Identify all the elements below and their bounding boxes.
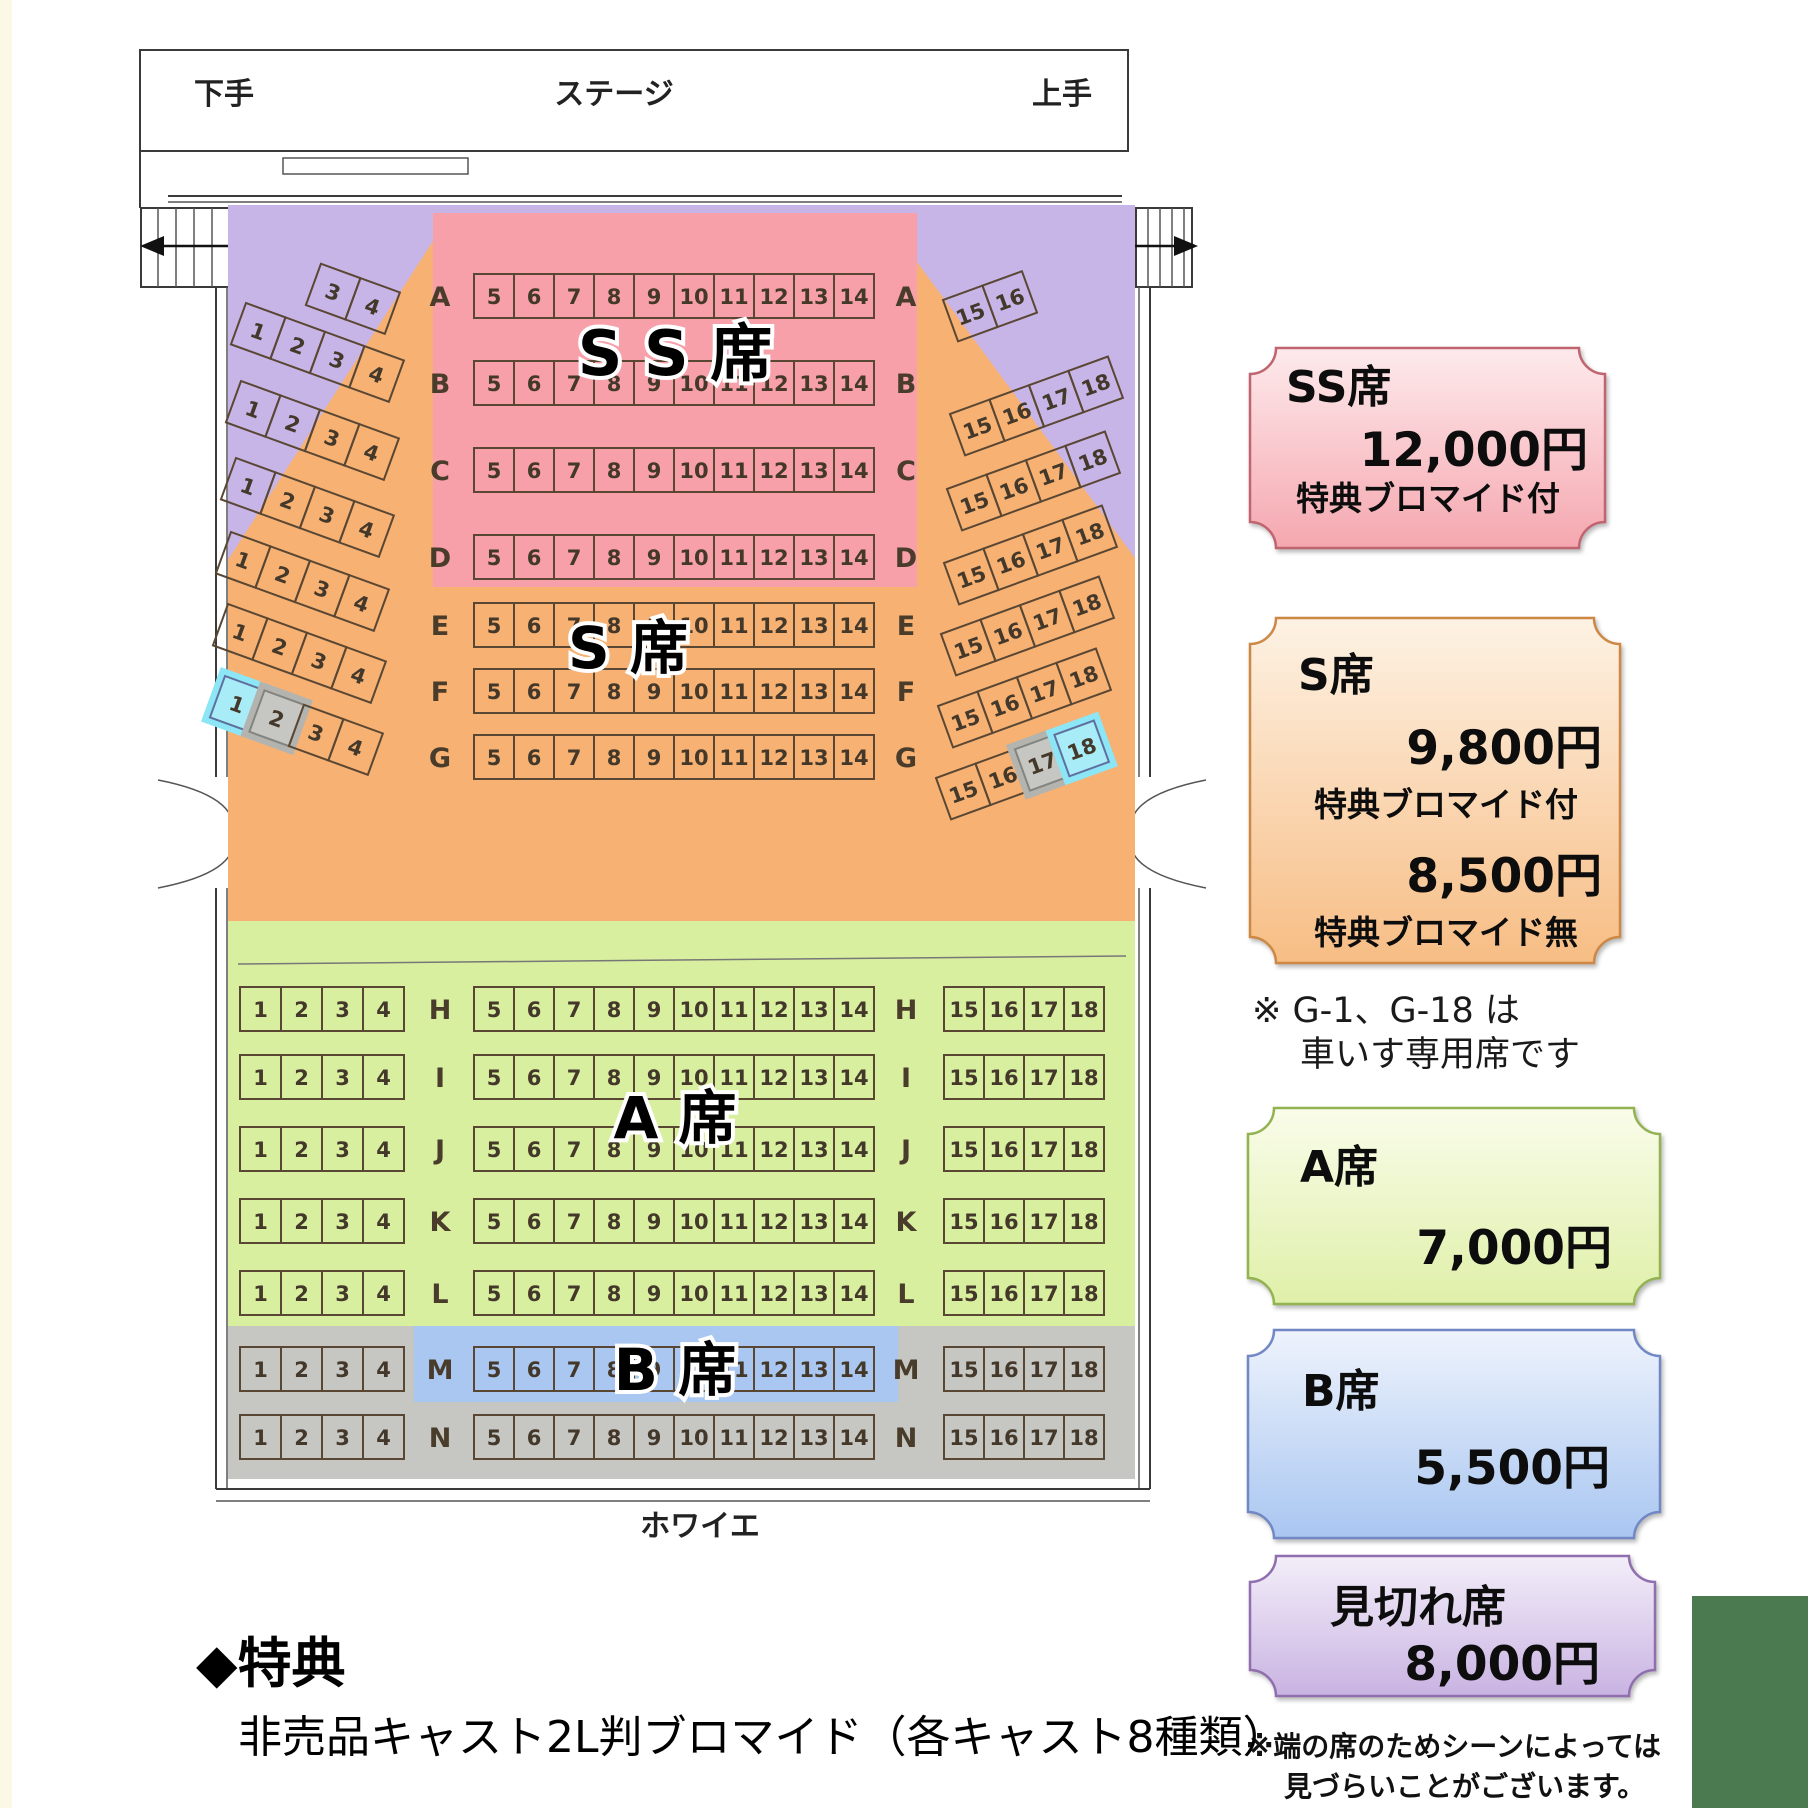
seat-number-M-16: 16 [989,1358,1018,1382]
row-label-L-right: L [897,1279,914,1310]
seat-number-E-6: 6 [527,614,542,638]
stage-left-label: 下手 [194,77,254,112]
seat-number-J-1: 1 [253,1138,268,1162]
seat-number-B-14: 14 [839,372,868,396]
ticket-s-note: 特典ブロマイド付 [1314,785,1578,824]
seat-number-N-12: 12 [759,1426,788,1450]
seat-number-D-9: 9 [647,546,662,570]
seat-number-M-12: 12 [759,1358,788,1382]
seat-number-K-6: 6 [527,1210,542,1234]
seat-number-H-6: 6 [527,998,542,1022]
seat-number-I-3: 3 [335,1066,350,1090]
seat-number-H-2: 2 [294,998,309,1022]
seat-number-F-10: 10 [679,680,708,704]
seat-number-G-9: 9 [647,746,662,770]
row-label-D-right: D [895,543,917,574]
row-label-A-right: A [896,282,917,313]
seat-number-E-13: 13 [799,614,828,638]
seat-number-D-11: 11 [719,546,748,570]
seat-number-H-11: 11 [719,998,748,1022]
ticket-s-note2: 特典ブロマイド無 [1314,913,1578,952]
seat-number-C-9: 9 [647,459,662,483]
seat-number-K-9: 9 [647,1210,662,1234]
seat-number-A-7: 7 [567,285,582,309]
seat-number-L-2: 2 [294,1282,309,1306]
row-label-K-left: K [430,1207,452,1238]
seat-number-J-16: 16 [989,1138,1018,1162]
seat-number-D-12: 12 [759,546,788,570]
seat-number-N-16: 16 [989,1426,1018,1450]
ticket-ss-price: 12,000円 [1360,423,1588,478]
seat-number-J-5: 5 [487,1138,502,1162]
seat-number-I-7: 7 [567,1066,582,1090]
seat-number-C-12: 12 [759,459,788,483]
seat-number-N-8: 8 [607,1426,622,1450]
seat-number-E-11: 11 [719,614,748,638]
seat-number-K-2: 2 [294,1210,309,1234]
seating-chart-page: AA567891011121314341516BB567891011121314… [0,0,1808,1808]
row-label-N-left: N [429,1423,452,1454]
seat-number-I-14: 14 [839,1066,868,1090]
benefit-body: 非売品キャスト2L判ブロマイド（各キャスト8種類） [238,1712,1287,1763]
foyer-label: ホワイエ [640,1509,760,1544]
seat-number-N-1: 1 [253,1426,268,1450]
stage-monitor [283,158,468,174]
seat-number-H-10: 10 [679,998,708,1022]
seat-number-F-6: 6 [527,680,542,704]
edge-note-line2: 見づらいことがございます。 [1284,1770,1645,1803]
seat-number-J-3: 3 [335,1138,350,1162]
seat-number-C-7: 7 [567,459,582,483]
seat-number-J-7: 7 [567,1138,582,1162]
seat-number-H-4: 4 [376,998,391,1022]
seat-number-K-12: 12 [759,1210,788,1234]
row-label-I-left: I [435,1063,445,1094]
seat-number-I-1: 1 [253,1066,268,1090]
seat-number-L-13: 13 [799,1282,828,1306]
seat-number-I-16: 16 [989,1066,1018,1090]
row-label-N-right: N [895,1423,918,1454]
row-label-J-right: J [899,1135,911,1166]
seat-number-I-15: 15 [949,1066,978,1090]
ticket-b-price: 5,500円 [1414,1441,1610,1496]
seat-number-F-5: 5 [487,680,502,704]
seat-number-B-5: 5 [487,372,502,396]
seat-number-G-5: 5 [487,746,502,770]
stage-label: ステージ [554,77,673,112]
seat-number-D-5: 5 [487,546,502,570]
seat-number-L-1: 1 [253,1282,268,1306]
seat-number-F-12: 12 [759,680,788,704]
seat-number-G-12: 12 [759,746,788,770]
seat-number-H-5: 5 [487,998,502,1022]
seat-number-L-16: 16 [989,1282,1018,1306]
seat-number-M-4: 4 [376,1358,391,1382]
seat-number-L-10: 10 [679,1282,708,1306]
seat-number-G-13: 13 [799,746,828,770]
seat-number-H-1: 1 [253,998,268,1022]
seat-number-H-12: 12 [759,998,788,1022]
seat-number-F-7: 7 [567,680,582,704]
benefit-heading: ◆特典 [196,1632,346,1695]
seat-number-A-5: 5 [487,285,502,309]
seat-number-D-6: 6 [527,546,542,570]
seat-number-A-12: 12 [759,285,788,309]
corner-green-block [1692,1596,1808,1808]
seat-number-K-7: 7 [567,1210,582,1234]
seat-number-I-12: 12 [759,1066,788,1090]
zone-label-a: A 席 [613,1084,736,1152]
wheelchair-note-line1: ※ G-1、G-18 は [1252,991,1520,1031]
seat-number-D-7: 7 [567,546,582,570]
seat-number-H-16: 16 [989,998,1018,1022]
page-edge-strip [0,0,12,1808]
seat-number-N-15: 15 [949,1426,978,1450]
zone-label-ss: S S 席 [578,317,772,390]
seat-number-C-6: 6 [527,459,542,483]
row-label-M-left: M [427,1355,454,1386]
ticket-s-title: S席 [1298,650,1374,701]
seat-number-H-7: 7 [567,998,582,1022]
ticket-a-title: A席 [1300,1142,1378,1193]
row-label-K-right: K [896,1207,918,1238]
row-label-B-right: B [896,369,917,400]
seat-number-H-13: 13 [799,998,828,1022]
seat-number-M-17: 17 [1029,1358,1058,1382]
seat-number-A-6: 6 [527,285,542,309]
seat-number-C-14: 14 [839,459,868,483]
row-label-M-right: M [893,1355,920,1386]
seat-number-G-8: 8 [607,746,622,770]
seat-number-K-5: 5 [487,1210,502,1234]
stage-right-label: 上手 [1032,77,1092,112]
seat-number-L-8: 8 [607,1282,622,1306]
seat-number-C-13: 13 [799,459,828,483]
seat-number-H-9: 9 [647,998,662,1022]
seat-number-K-18: 18 [1069,1210,1098,1234]
row-label-G-right: G [895,743,917,774]
ticket-ss-title: SS席 [1286,362,1391,413]
seat-number-N-13: 13 [799,1426,828,1450]
seat-number-L-5: 5 [487,1282,502,1306]
seat-number-M-2: 2 [294,1358,309,1382]
row-label-E-left: E [431,611,449,642]
row-label-C-right: C [896,456,916,487]
seat-number-F-14: 14 [839,680,868,704]
row-label-I-right: I [901,1063,911,1094]
seat-number-F-9: 9 [647,680,662,704]
seat-number-D-14: 14 [839,546,868,570]
seat-number-N-10: 10 [679,1426,708,1450]
seat-number-L-4: 4 [376,1282,391,1306]
seat-number-L-9: 9 [647,1282,662,1306]
seat-number-M-5: 5 [487,1358,502,1382]
row-label-C-left: C [430,456,450,487]
seat-number-H-17: 17 [1029,998,1058,1022]
seat-number-L-15: 15 [949,1282,978,1306]
seat-number-M-15: 15 [949,1358,978,1382]
seat-number-L-12: 12 [759,1282,788,1306]
seat-number-L-6: 6 [527,1282,542,1306]
seat-number-B-6: 6 [527,372,542,396]
seat-number-J-12: 12 [759,1138,788,1162]
row-label-A-left: A [430,282,451,313]
ticket-b [1248,1330,1660,1538]
seating-chart-svg: AA567891011121314341516BB567891011121314… [0,0,1808,1808]
row-label-E-right: E [897,611,915,642]
seat-number-N-11: 11 [719,1426,748,1450]
ticket-mikire-price: 8,000円 [1404,1637,1600,1692]
seat-number-N-18: 18 [1069,1426,1098,1450]
seat-number-N-14: 14 [839,1426,868,1450]
seat-number-K-13: 13 [799,1210,828,1234]
seat-number-J-6: 6 [527,1138,542,1162]
seat-number-C-10: 10 [679,459,708,483]
seat-number-J-14: 14 [839,1138,868,1162]
seat-number-I-4: 4 [376,1066,391,1090]
seat-number-N-17: 17 [1029,1426,1058,1450]
seat-number-K-3: 3 [335,1210,350,1234]
row-label-H-left: H [429,995,452,1026]
row-label-B-left: B [430,369,451,400]
seat-number-K-1: 1 [253,1210,268,1234]
seat-number-K-11: 11 [719,1210,748,1234]
ticket-a-price: 7,000円 [1416,1221,1612,1276]
seat-number-L-11: 11 [719,1282,748,1306]
seat-number-J-15: 15 [949,1138,978,1162]
seat-number-N-6: 6 [527,1426,542,1450]
door-left [158,780,234,888]
ticket-s-price2: 8,500円 [1406,849,1602,904]
seat-number-E-14: 14 [839,614,868,638]
seat-number-A-8: 8 [607,285,622,309]
ticket-ss-note: 特典ブロマイド付 [1296,479,1560,518]
seat-number-E-12: 12 [759,614,788,638]
zone-label-s: S 席 [568,614,688,682]
seat-number-N-9: 9 [647,1426,662,1450]
seat-number-N-7: 7 [567,1426,582,1450]
seat-number-H-18: 18 [1069,998,1098,1022]
seat-number-M-13: 13 [799,1358,828,1382]
seat-number-M-6: 6 [527,1358,542,1382]
ticket-s-price: 9,800円 [1406,721,1602,776]
seat-number-J-4: 4 [376,1138,391,1162]
seat-number-D-13: 13 [799,546,828,570]
row-label-F-left: F [431,677,449,708]
seat-number-F-11: 11 [719,680,748,704]
seat-number-A-9: 9 [647,285,662,309]
seat-number-F-8: 8 [607,680,622,704]
seat-number-G-14: 14 [839,746,868,770]
zone-label-b: B 席 [614,1336,736,1404]
seat-number-K-4: 4 [376,1210,391,1234]
seat-number-L-18: 18 [1069,1282,1098,1306]
seat-number-N-5: 5 [487,1426,502,1450]
seat-number-K-14: 14 [839,1210,868,1234]
seat-number-B-13: 13 [799,372,828,396]
seat-number-M-3: 3 [335,1358,350,1382]
row-label-D-left: D [429,543,451,574]
seat-number-I-17: 17 [1029,1066,1058,1090]
seat-number-E-5: 5 [487,614,502,638]
seat-number-C-8: 8 [607,459,622,483]
seat-number-M-18: 18 [1069,1358,1098,1382]
seat-number-K-17: 17 [1029,1210,1058,1234]
seat-number-I-18: 18 [1069,1066,1098,1090]
seat-number-M-7: 7 [567,1358,582,1382]
seat-number-K-8: 8 [607,1210,622,1234]
seat-number-C-5: 5 [487,459,502,483]
seat-number-L-14: 14 [839,1282,868,1306]
ticket-b-title: B席 [1302,1366,1380,1417]
seat-number-F-13: 13 [799,680,828,704]
seat-number-C-11: 11 [719,459,748,483]
seat-number-L-7: 7 [567,1282,582,1306]
seat-number-H-3: 3 [335,998,350,1022]
seat-number-A-14: 14 [839,285,868,309]
seat-number-K-15: 15 [949,1210,978,1234]
seat-number-I-5: 5 [487,1066,502,1090]
seat-number-A-11: 11 [719,285,748,309]
seat-number-J-17: 17 [1029,1138,1058,1162]
seat-number-D-10: 10 [679,546,708,570]
row-label-L-left: L [431,1279,448,1310]
seat-number-A-13: 13 [799,285,828,309]
edge-note-line1: ※端の席のためシーンによっては [1246,1730,1661,1763]
seat-number-N-3: 3 [335,1426,350,1450]
seat-number-D-8: 8 [607,546,622,570]
seat-number-H-14: 14 [839,998,868,1022]
seat-number-G-10: 10 [679,746,708,770]
seat-number-I-2: 2 [294,1066,309,1090]
seat-number-H-8: 8 [607,998,622,1022]
seat-number-I-6: 6 [527,1066,542,1090]
seat-number-G-6: 6 [527,746,542,770]
seat-number-J-18: 18 [1069,1138,1098,1162]
seat-number-L-17: 17 [1029,1282,1058,1306]
seat-number-H-15: 15 [949,998,978,1022]
seat-number-A-10: 10 [679,285,708,309]
row-label-G-left: G [429,743,451,774]
seat-number-G-7: 7 [567,746,582,770]
seat-number-J-2: 2 [294,1138,309,1162]
seat-number-N-4: 4 [376,1426,391,1450]
ticket-mikire-title: 見切れ席 [1330,1582,1506,1633]
seat-number-J-13: 13 [799,1138,828,1162]
seat-number-L-3: 3 [335,1282,350,1306]
seat-number-G-11: 11 [719,746,748,770]
row-label-H-right: H [895,995,918,1026]
wheelchair-note-line2: 車いす専用席です [1300,1035,1580,1075]
seat-number-I-13: 13 [799,1066,828,1090]
seat-number-N-2: 2 [294,1426,309,1450]
row-label-J-left: J [433,1135,445,1166]
row-label-F-right: F [897,677,915,708]
seat-number-K-16: 16 [989,1210,1018,1234]
seat-number-M-1: 1 [253,1358,268,1382]
door-right [1130,780,1206,888]
seat-number-K-10: 10 [679,1210,708,1234]
seat-number-M-14: 14 [839,1358,868,1382]
